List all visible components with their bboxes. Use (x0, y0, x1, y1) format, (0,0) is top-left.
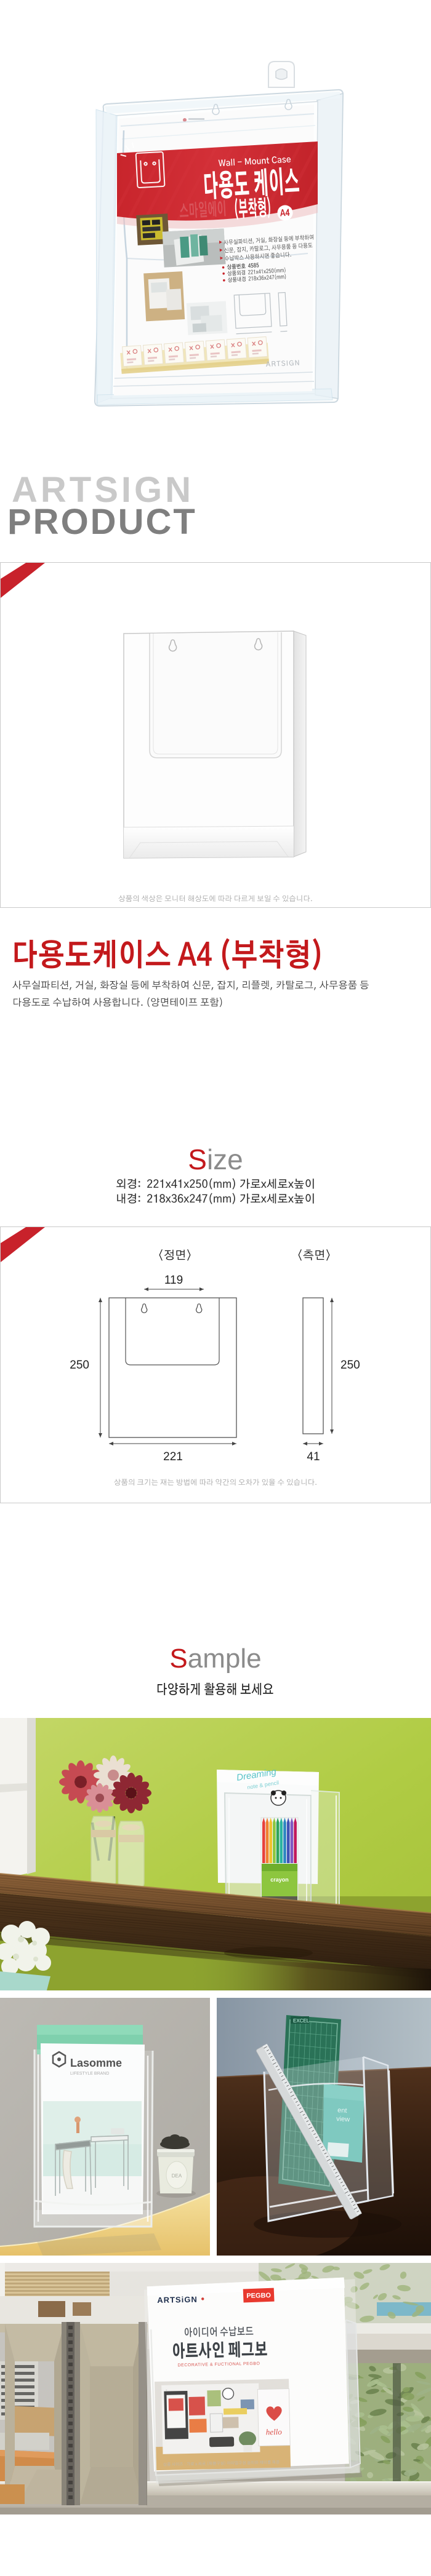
svg-text:250: 250 (340, 1359, 360, 1372)
svg-text:250: 250 (70, 1359, 89, 1372)
svg-text:ARTSiGN: ARTSiGN (157, 2295, 198, 2305)
svg-text:41: 41 (307, 1450, 320, 1463)
svg-text:119: 119 (164, 1274, 183, 1287)
svg-text:crayon: crayon (270, 1877, 289, 1883)
svg-text:221: 221 (163, 1450, 183, 1463)
svg-text:DEA: DEA (172, 2173, 182, 2179)
svg-text:EXCEL: EXCEL (293, 2018, 310, 2024)
svg-text:PEGBO: PEGBO (246, 2292, 271, 2300)
